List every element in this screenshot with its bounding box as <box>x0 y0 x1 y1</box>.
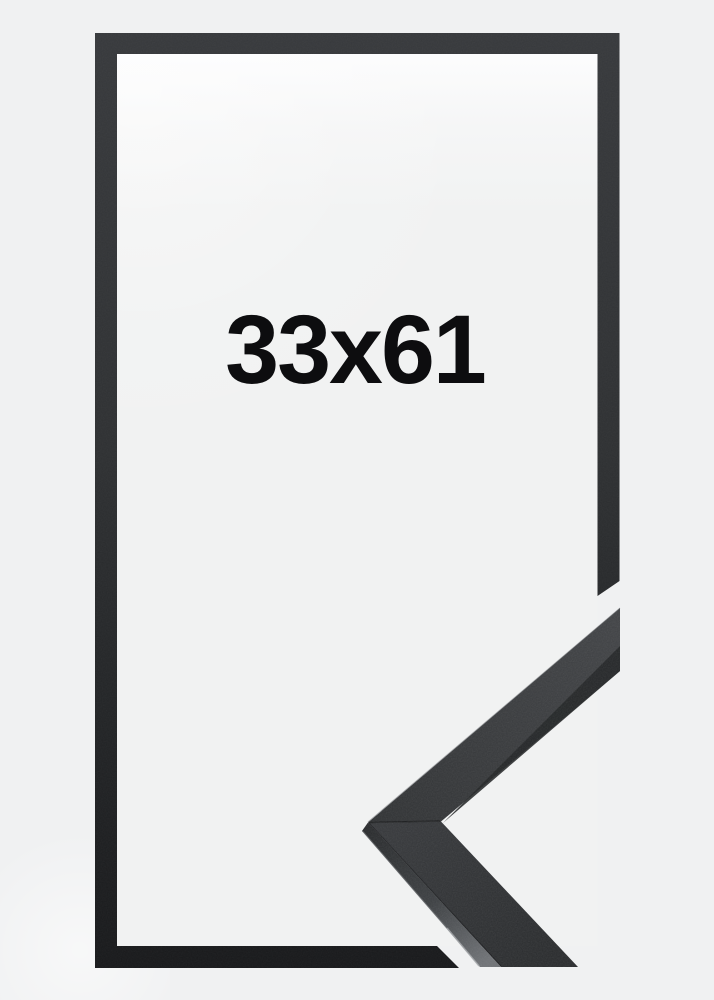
inner-mat-corner-glow <box>117 54 437 474</box>
product-image: 33x61 <box>0 0 714 1000</box>
frame-illustration: 33x61 <box>0 0 714 1000</box>
size-label: 33x61 <box>225 295 485 404</box>
frame-inner-mat <box>117 54 598 946</box>
